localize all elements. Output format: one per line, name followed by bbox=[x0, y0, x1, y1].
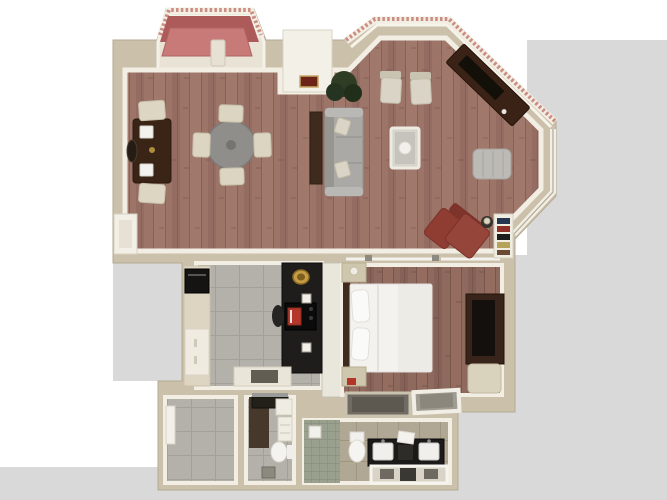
cooktop-knob-2 bbox=[309, 316, 313, 320]
mirror-reflection-2 bbox=[424, 469, 438, 479]
book-row-4 bbox=[497, 242, 510, 248]
round-chair-top bbox=[219, 105, 244, 123]
floorplan-3d-render bbox=[0, 0, 667, 500]
mirror-reflection-center bbox=[400, 468, 416, 481]
book-row-2 bbox=[497, 226, 510, 232]
table-lamp bbox=[484, 218, 490, 224]
table-centerpiece bbox=[149, 147, 155, 153]
drawer-handle-1 bbox=[194, 339, 197, 347]
nightstand-lamp bbox=[350, 267, 358, 275]
book-row-1 bbox=[497, 218, 510, 224]
small-toilet-tank bbox=[287, 445, 294, 459]
cooktop-knob-1 bbox=[309, 307, 313, 311]
wall-oven bbox=[185, 269, 209, 293]
kitchen-sink-basin bbox=[297, 274, 305, 281]
bed-headboard bbox=[343, 282, 350, 372]
kitchen-bedroom-wall bbox=[322, 263, 342, 397]
dresser-tv bbox=[472, 300, 495, 356]
counter-outlet-1 bbox=[302, 294, 311, 303]
chaise-lounge bbox=[473, 149, 511, 179]
door-nook-inner bbox=[119, 220, 132, 248]
counter-outlet-2 bbox=[302, 343, 311, 352]
counter-stool bbox=[272, 305, 284, 327]
place-setting-top bbox=[140, 126, 153, 138]
sofa-armrest-top bbox=[325, 108, 363, 117]
round-table-base bbox=[226, 140, 236, 150]
bathtub-basin bbox=[420, 393, 454, 409]
kitchen-towel bbox=[288, 308, 301, 325]
small-toilet bbox=[271, 442, 287, 462]
vanity-sink-1 bbox=[373, 443, 393, 460]
kitchen-drawer-unit bbox=[185, 329, 209, 375]
wall-art bbox=[300, 76, 318, 87]
tissue-box bbox=[397, 431, 414, 444]
bed-pillow-2 bbox=[351, 327, 370, 360]
window-seat-cushion bbox=[162, 28, 252, 56]
sofa-backrest bbox=[325, 110, 334, 194]
shower-basin bbox=[352, 397, 404, 412]
wall-mirror bbox=[127, 140, 137, 162]
dining-chair-top bbox=[138, 100, 165, 121]
vanity-sink-2 bbox=[419, 443, 439, 460]
round-chair-left bbox=[193, 133, 211, 158]
utility-door bbox=[166, 406, 175, 444]
sofa-armrest-bottom bbox=[325, 187, 363, 196]
toilet bbox=[349, 440, 365, 462]
floorplan-svg bbox=[0, 0, 667, 500]
console-table bbox=[310, 112, 322, 184]
faucet-1 bbox=[381, 439, 385, 443]
track-handle-left bbox=[365, 255, 372, 261]
book-row-3 bbox=[497, 234, 510, 240]
accent-chair-1-seat bbox=[380, 77, 401, 103]
faucet-2 bbox=[427, 439, 431, 443]
light-switch bbox=[309, 426, 321, 438]
track-handle-right bbox=[432, 255, 439, 261]
accent-chair-2-seat bbox=[410, 78, 431, 104]
floor-drain bbox=[262, 467, 275, 478]
vanity-cabinet-gap bbox=[398, 445, 413, 460]
backdrop-left-pocket bbox=[113, 255, 182, 381]
potted-plant-foliage-3 bbox=[344, 84, 362, 102]
round-chair-right bbox=[254, 133, 272, 158]
bed-blanket bbox=[398, 285, 432, 371]
mirror-reflection-1 bbox=[380, 469, 394, 479]
small-cabinet bbox=[278, 417, 292, 441]
utility-room-floor bbox=[165, 397, 236, 483]
bedroom-bench bbox=[468, 364, 501, 393]
potted-plant-foliage-2 bbox=[326, 83, 344, 101]
drawer-handle-2 bbox=[194, 356, 197, 364]
small-sink-unit bbox=[276, 399, 292, 415]
bed-pillow-1 bbox=[351, 289, 370, 322]
decor-bowl bbox=[399, 142, 411, 154]
window-seat-table bbox=[211, 40, 225, 66]
dining-chair-bottom bbox=[138, 183, 165, 204]
place-setting-bottom bbox=[140, 164, 153, 176]
pass-through-inset bbox=[251, 370, 278, 383]
small-vanity-mirror bbox=[252, 393, 288, 397]
round-chair-bottom bbox=[220, 168, 245, 186]
book-row-5 bbox=[497, 250, 510, 255]
alarm-clock bbox=[347, 378, 356, 385]
